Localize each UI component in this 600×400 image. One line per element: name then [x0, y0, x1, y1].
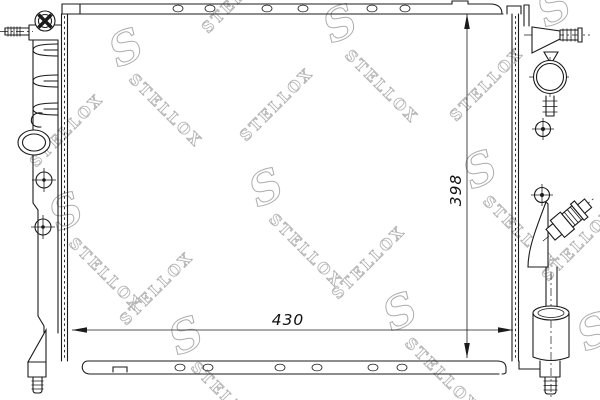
mounting-hole [532, 118, 554, 140]
drain-plug [519, 267, 569, 397]
stellox-watermark: SSSSSSSSSSTELLOXSTELLOXSTELLOXSTELLOXSTE… [26, 0, 600, 400]
threaded-stud [543, 96, 558, 116]
watermark-text: STELLOX [198, 0, 279, 37]
radiator-drawing-svg: SSSSSSSSSSTELLOXSTELLOXSTELLOXSTELLOXSTE… [0, 0, 600, 400]
filler-neck [529, 57, 571, 98]
watermark-text: STELLOX [236, 64, 317, 145]
watermark-text: STELLOX [401, 334, 482, 400]
mounting-hole [32, 168, 56, 192]
side-port [18, 130, 50, 155]
mounting-hole [531, 184, 553, 206]
watermark-text: STELLOX [125, 70, 206, 151]
watermark-text: S [569, 302, 600, 362]
dimension-height: 398 [447, 14, 470, 358]
watermark-text: S [101, 18, 151, 78]
bottom-bracket-pin [28, 330, 46, 393]
tank-baffles [31, 44, 58, 127]
watermark-text: S [315, 0, 365, 54]
upper-fitting [524, 27, 590, 64]
pressure-cap [35, 11, 55, 31]
watermark-text: STELLOX [187, 358, 268, 400]
watermark-text: STELLOX [446, 44, 527, 125]
top-tank [62, 1, 503, 14]
top-tank-holes [173, 5, 410, 12]
watermark-text: STELLOX [265, 210, 346, 291]
watermark-text: STELLOX [341, 46, 422, 127]
watermark-text: S [161, 306, 211, 366]
dimension-height-label: 398 [447, 174, 465, 207]
watermark-text: S [375, 282, 425, 342]
watermark-text: S [241, 158, 291, 218]
dimension-width-label: 430 [272, 311, 305, 329]
radiator-technical-drawing: SSSSSSSSSSTELLOXSTELLOXSTELLOXSTELLOXSTE… [0, 0, 600, 400]
